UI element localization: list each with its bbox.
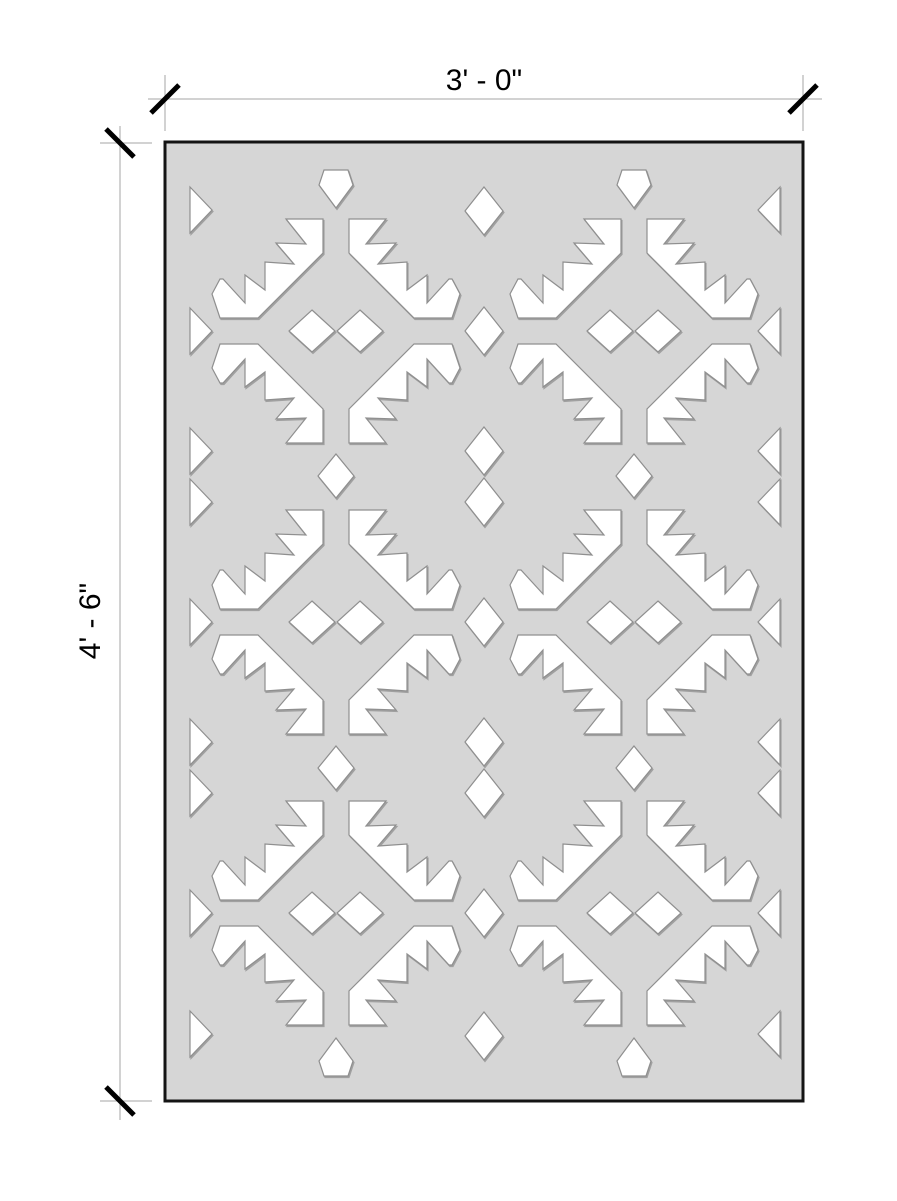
- panel-drawing-canvas: 3' - 0" 4' - 6": [0, 0, 897, 1201]
- height-dimension-label: 4' - 6": [74, 583, 107, 659]
- width-dimension-label: 3' - 0": [446, 64, 522, 97]
- panel-shop-drawing: 3' - 0" 4' - 6": [0, 0, 897, 1201]
